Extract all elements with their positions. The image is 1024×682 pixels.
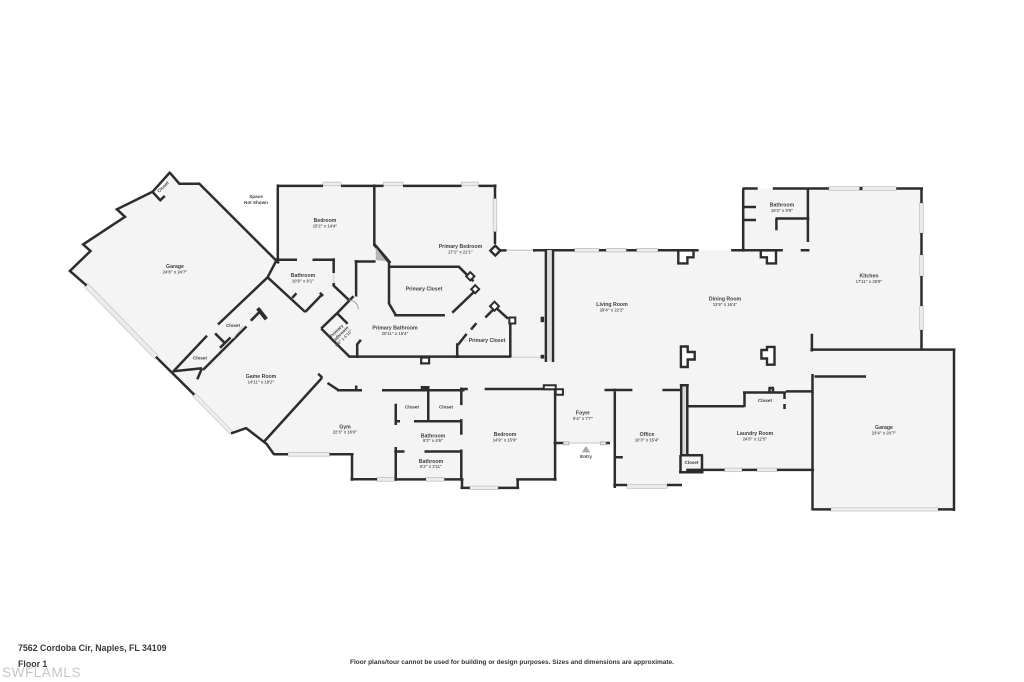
svg-text:Primary Closet: Primary Closet (406, 287, 443, 293)
svg-text:Closet: Closet (405, 405, 420, 410)
svg-text:23'4" x 20'7": 23'4" x 20'7" (872, 431, 897, 436)
svg-text:27'1" x 21'1": 27'1" x 21'1" (448, 250, 473, 255)
svg-text:24'8" x 24'7": 24'8" x 24'7" (163, 270, 188, 275)
svg-text:Primary Closet: Primary Closet (469, 338, 506, 344)
svg-text:16'3" x 9'9": 16'3" x 9'9" (771, 208, 793, 213)
svg-text:15'2" x 14'4": 15'2" x 14'4" (313, 224, 338, 229)
svg-text:14'9" x 15'9": 14'9" x 15'9" (493, 438, 518, 443)
svg-text:17'11" x 25'9": 17'11" x 25'9" (856, 279, 883, 284)
svg-text:22'3" x 16'0": 22'3" x 16'0" (333, 429, 358, 434)
svg-text:9'2" x 3'11": 9'2" x 3'11" (420, 464, 442, 469)
svg-text:Closet: Closet (439, 405, 454, 410)
svg-text:Entry: Entry (580, 454, 592, 459)
svg-text:Space: Space (249, 194, 263, 199)
svg-text:10'3" x 15'4": 10'3" x 15'4" (635, 438, 660, 443)
svg-text:13'9" x 16'4": 13'9" x 16'4" (713, 302, 738, 307)
svg-text:29'4" x 22'2": 29'4" x 22'2" (600, 308, 625, 313)
svg-text:Closet: Closet (193, 356, 208, 361)
svg-text:Closet: Closet (226, 323, 241, 328)
svg-text:9'2" x 4'6": 9'2" x 4'6" (423, 438, 443, 443)
svg-text:Closet: Closet (684, 460, 699, 465)
svg-text:24'5" x 12'5": 24'5" x 12'5" (743, 437, 768, 442)
svg-text:20'11" x 15'4": 20'11" x 15'4" (382, 331, 409, 336)
svg-text:9'4" x 7'7": 9'4" x 7'7" (573, 416, 593, 421)
svg-text:10'8" x 8'1": 10'8" x 8'1" (292, 279, 314, 284)
svg-text:Closet: Closet (758, 398, 773, 403)
svg-text:Not Shown: Not Shown (244, 200, 268, 205)
svg-text:14'11" x 18'2": 14'11" x 18'2" (248, 379, 275, 384)
